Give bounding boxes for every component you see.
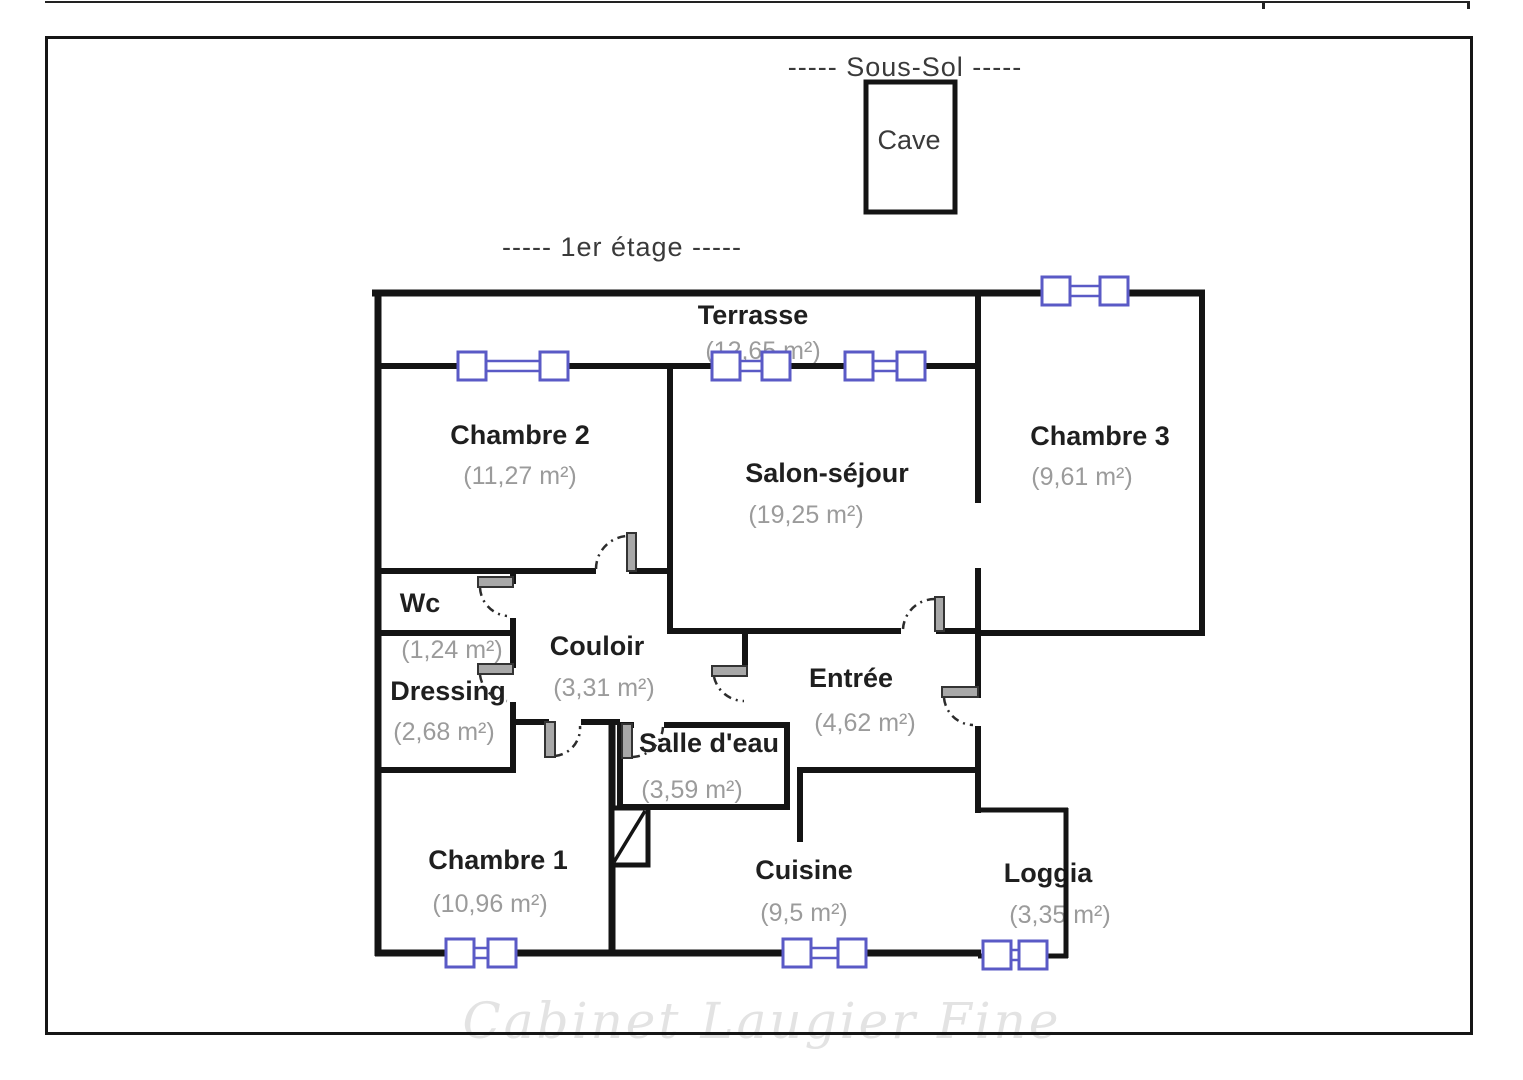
door-icon-salon	[903, 597, 944, 631]
door-icon-salle-eau	[622, 724, 663, 758]
floor-plan-drawing	[0, 0, 1523, 1080]
window-icon	[983, 941, 1047, 969]
window-icon	[845, 352, 925, 380]
window-icon	[1042, 277, 1128, 305]
door-icon-chambre1	[545, 722, 580, 757]
shower-box	[612, 808, 648, 865]
door-icon-dressing	[478, 664, 513, 701]
cave-room-outline	[866, 82, 955, 212]
door-icon-entree-right	[942, 687, 978, 725]
window-icon	[458, 352, 568, 380]
door-icon-wc	[478, 577, 513, 616]
walls	[372, 290, 1205, 958]
door-icon-chambre2	[596, 533, 636, 571]
window-icons	[446, 277, 1128, 969]
floor-plan-page: Cabinet Laugier Fine ----- Sous-Sol ----…	[0, 0, 1523, 1080]
window-icon	[712, 352, 790, 380]
window-icon	[783, 939, 866, 967]
door-icon-couloir-entree	[712, 666, 747, 701]
window-icon	[446, 939, 516, 967]
